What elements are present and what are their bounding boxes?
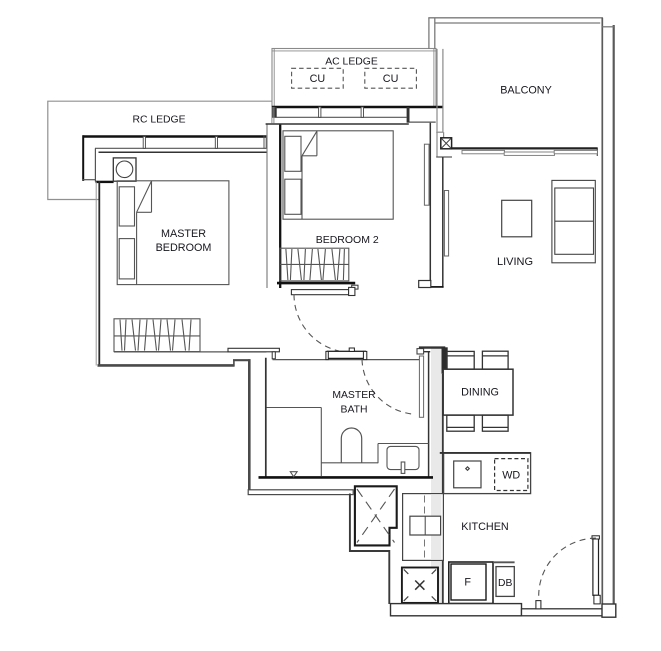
- svg-text:DB: DB: [498, 578, 512, 589]
- svg-text:WD: WD: [502, 470, 520, 482]
- svg-text:F: F: [464, 576, 471, 588]
- svg-text:CU: CU: [310, 73, 326, 85]
- svg-text:BEDROOM: BEDROOM: [156, 242, 212, 254]
- svg-text:AC LEDGE: AC LEDGE: [325, 57, 378, 68]
- svg-text:MASTER: MASTER: [161, 228, 206, 240]
- svg-text:BATH: BATH: [341, 404, 368, 415]
- svg-text:BEDROOM 2: BEDROOM 2: [316, 234, 379, 246]
- svg-text:MASTER: MASTER: [332, 390, 376, 401]
- svg-text:CU: CU: [383, 73, 399, 85]
- svg-text:DINING: DINING: [461, 387, 499, 399]
- svg-text:LIVING: LIVING: [497, 256, 533, 268]
- svg-text:RC LEDGE: RC LEDGE: [132, 115, 185, 126]
- svg-text:KITCHEN: KITCHEN: [461, 521, 508, 533]
- svg-text:BALCONY: BALCONY: [500, 85, 552, 97]
